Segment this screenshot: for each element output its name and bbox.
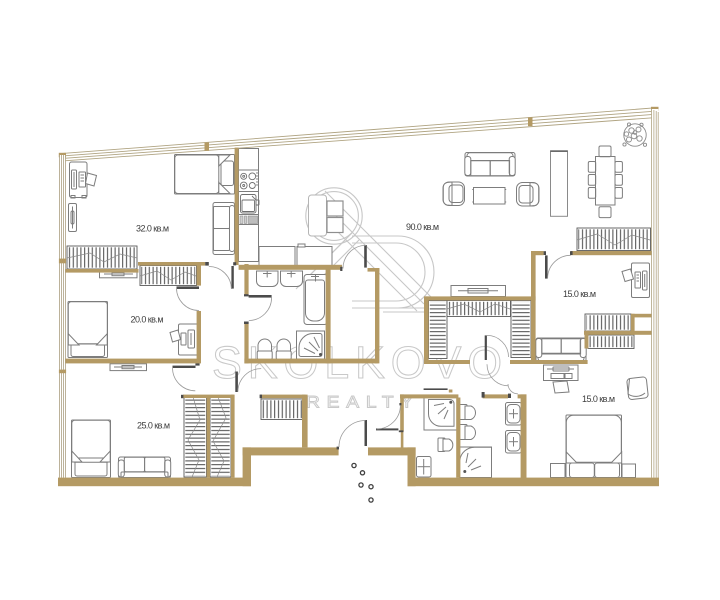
svg-text:15.0 кв.м: 15.0 кв.м	[563, 289, 596, 299]
svg-text:90.0 кв.м: 90.0 кв.м	[406, 222, 439, 232]
svg-text:32.0 кв.м: 32.0 кв.м	[136, 224, 169, 234]
svg-text:25.0 кв.м: 25.0 кв.м	[137, 421, 170, 431]
svg-text:15.0 кв.м: 15.0 кв.м	[582, 394, 615, 404]
svg-text:20.0 кв.м: 20.0 кв.м	[131, 315, 164, 325]
